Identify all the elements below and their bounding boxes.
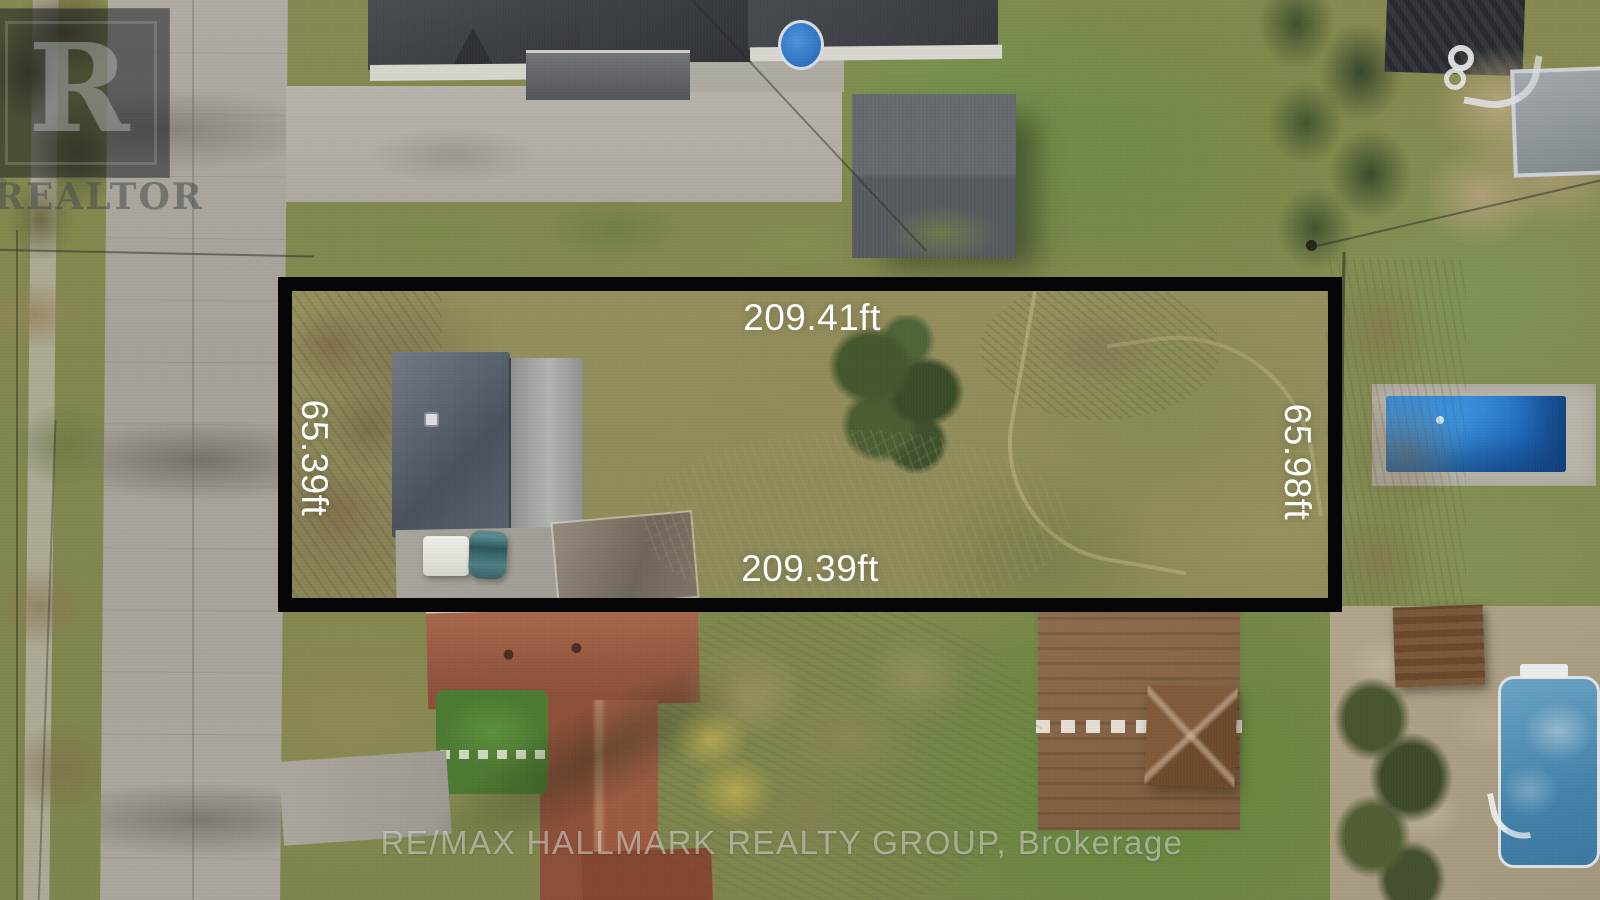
brokerage-watermark: RE/MAX HALLMARK REALTY GROUP, Brokerage (380, 824, 1183, 862)
porch-awning (526, 50, 690, 100)
aerial-photo: 209.41ft 209.39ft 65.39ft 65.98ft R REAL… (0, 0, 1600, 900)
utility-wire (16, 230, 18, 900)
dimension-label-top: 209.41ft (743, 297, 881, 339)
dimension-label-left: 65.39ft (293, 400, 335, 517)
patio-bushes (1318, 672, 1473, 900)
neighbor-driveway (286, 86, 842, 202)
pool-slide-loop (1444, 68, 1466, 90)
dimension-label-bottom: 209.39ft (741, 548, 879, 590)
diving-board (1520, 664, 1568, 678)
realtor-wordmark-text: REALTOR (0, 176, 204, 218)
realtor-logo: R (0, 8, 170, 178)
gazebo-roof (1144, 684, 1237, 787)
backyard-pool (1498, 676, 1600, 868)
dimension-label-right: 65.98ft (1276, 404, 1318, 521)
realtor-logo-letter: R (28, 27, 129, 149)
registered-mark: ® (0, 176, 10, 192)
boundary-brush (1326, 258, 1466, 614)
street-seam (192, 0, 194, 900)
shrub-band (286, 196, 1016, 280)
kiddie-pool (778, 20, 824, 70)
